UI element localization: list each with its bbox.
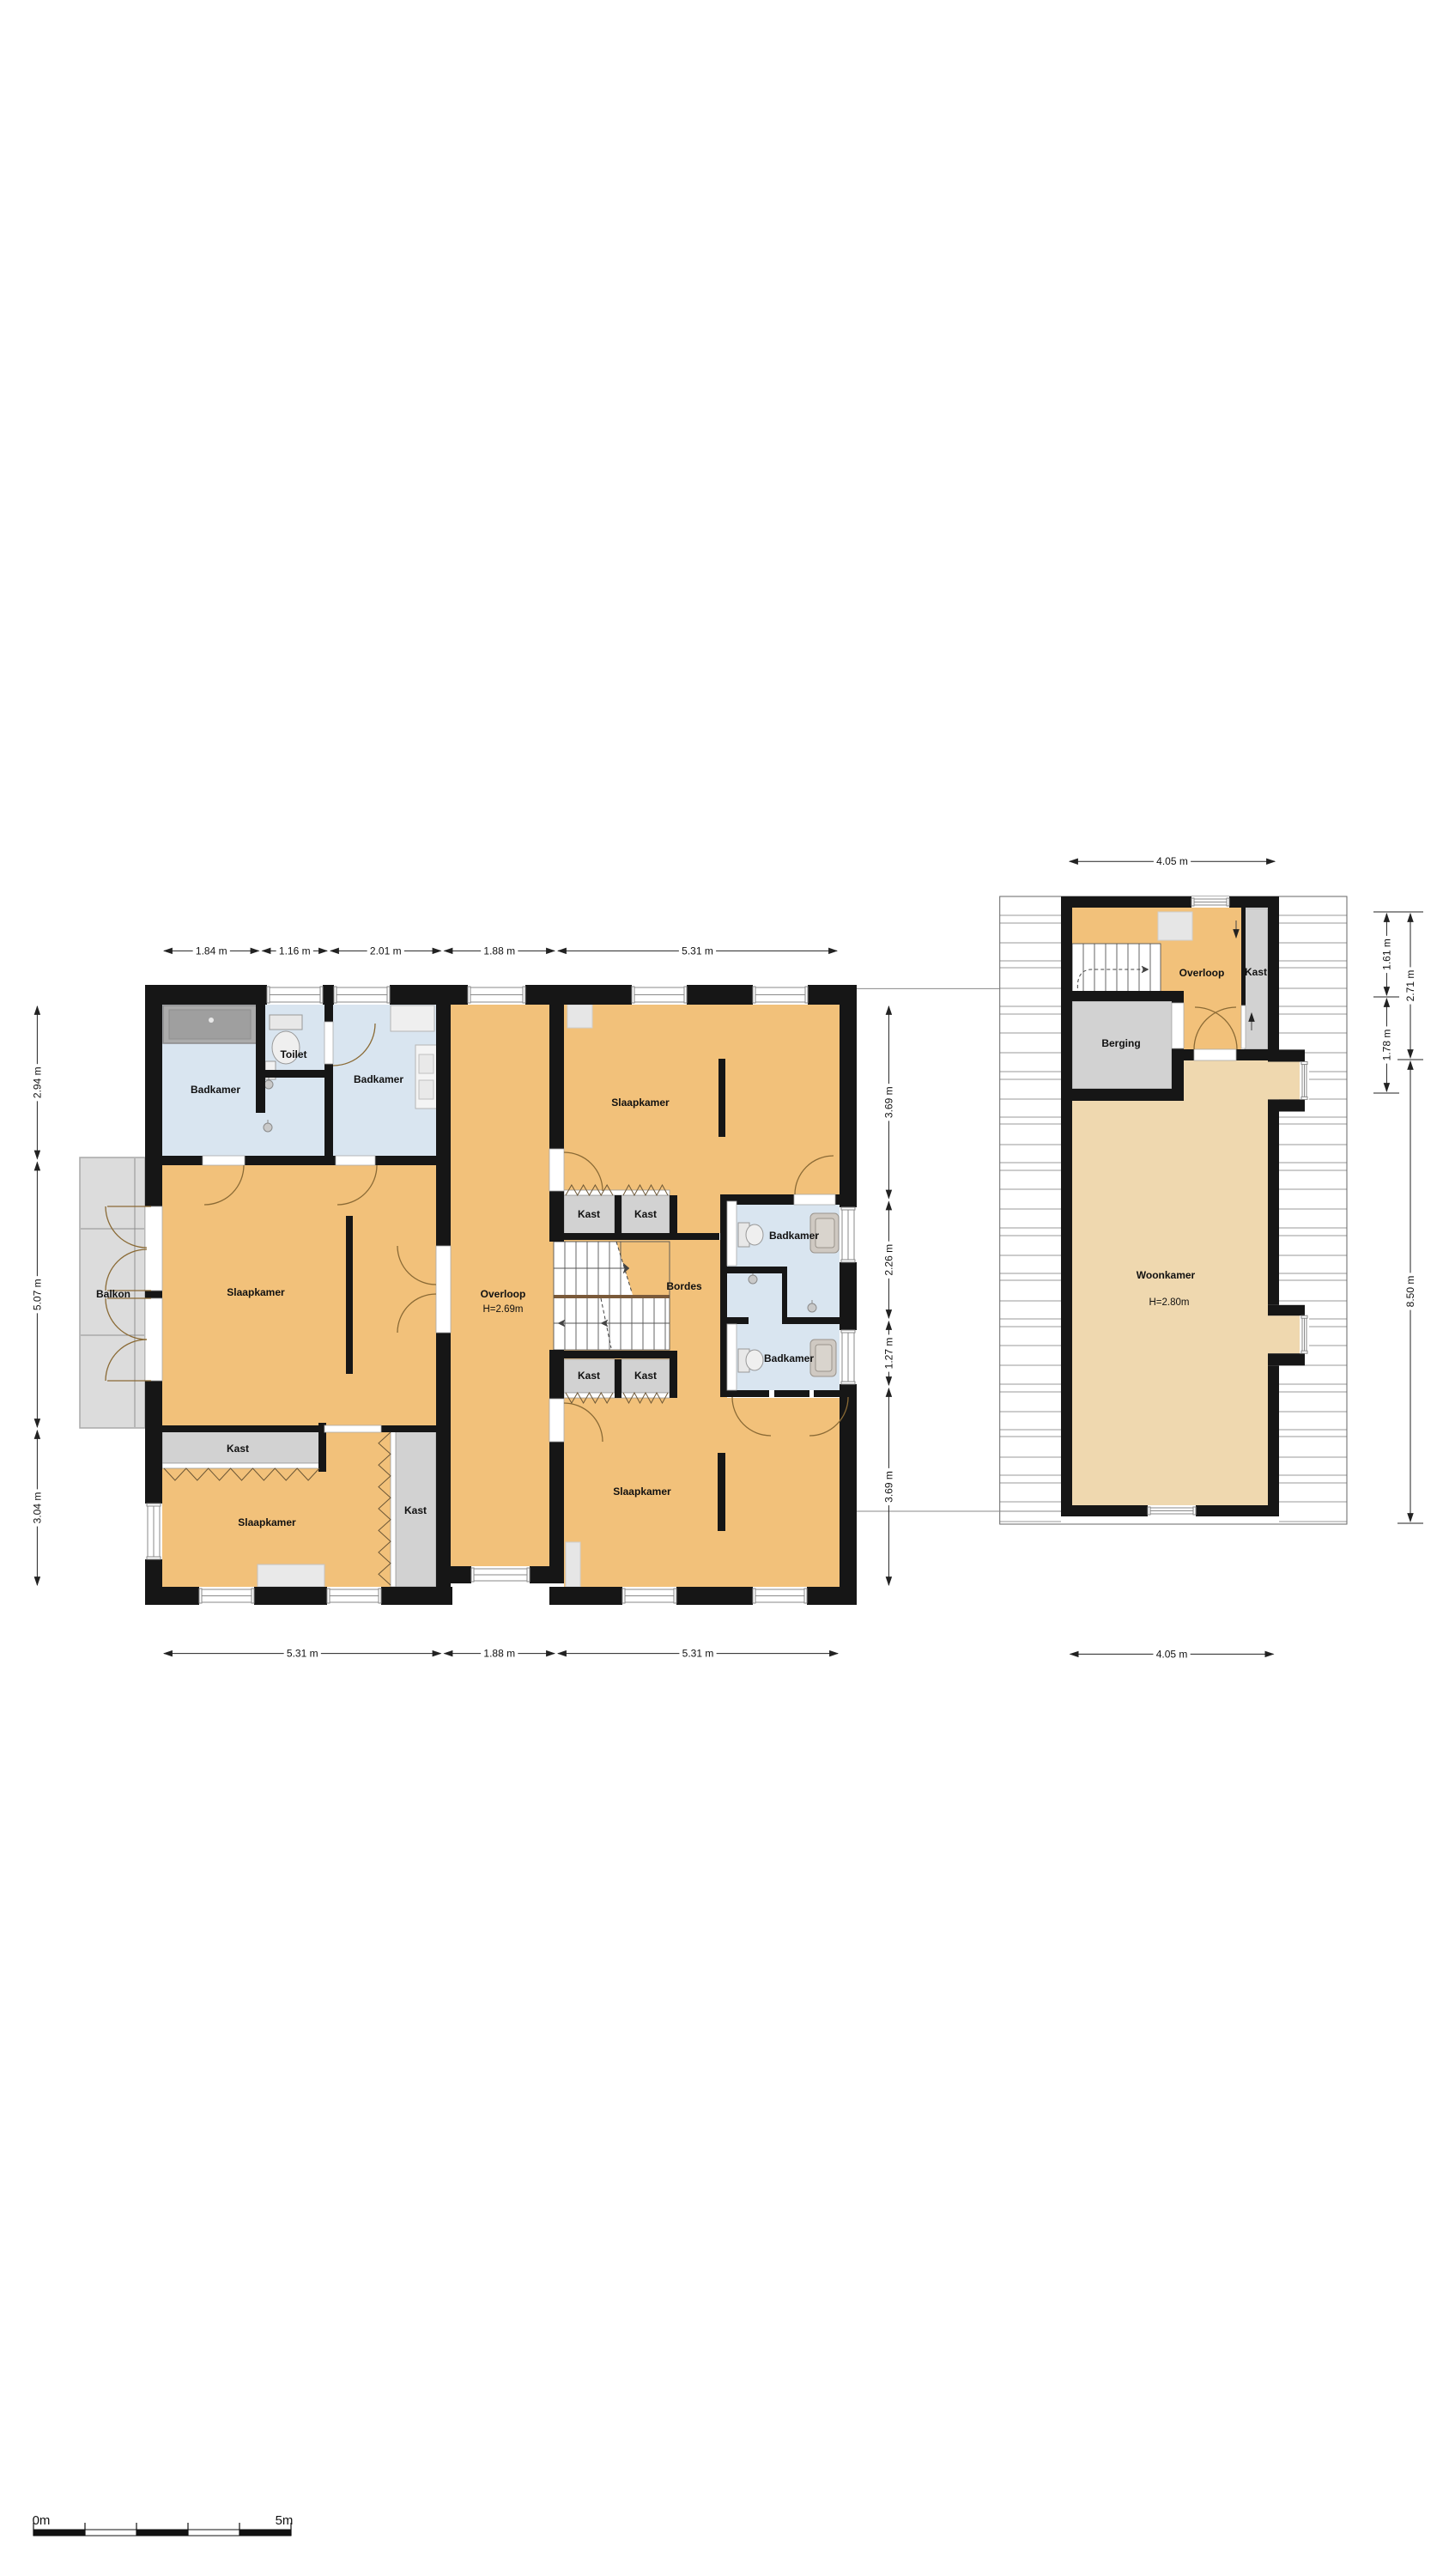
svg-text:Toilet: Toilet <box>280 1048 306 1060</box>
svg-text:2.26 m: 2.26 m <box>882 1244 894 1276</box>
svg-text:Slaapkamer: Slaapkamer <box>238 1516 296 1528</box>
svg-text:4.05 m: 4.05 m <box>1156 855 1188 867</box>
svg-text:H=2.69m: H=2.69m <box>483 1304 524 1315</box>
svg-text:Berging: Berging <box>1101 1037 1140 1049</box>
svg-text:8.50 m: 8.50 m <box>1404 1276 1416 1308</box>
svg-text:1.78 m: 1.78 m <box>1380 1030 1392 1061</box>
svg-text:1.88 m: 1.88 m <box>483 945 515 957</box>
svg-text:Overloop: Overloop <box>1179 967 1225 979</box>
svg-text:2.71 m: 2.71 m <box>1404 970 1416 1002</box>
svg-text:5m: 5m <box>276 2513 294 2528</box>
svg-text:5.07 m: 5.07 m <box>31 1279 43 1310</box>
svg-text:Kast: Kast <box>578 1370 600 1382</box>
svg-text:Kast: Kast <box>634 1370 657 1382</box>
svg-text:H=2.80m: H=2.80m <box>1149 1297 1190 1308</box>
svg-text:Bordes: Bordes <box>666 1280 702 1292</box>
svg-text:Balkon: Balkon <box>96 1288 130 1300</box>
svg-text:Slaapkamer: Slaapkamer <box>227 1286 285 1298</box>
svg-text:3.04 m: 3.04 m <box>31 1492 43 1524</box>
svg-text:3.69 m: 3.69 m <box>882 1471 894 1503</box>
svg-text:Kast: Kast <box>227 1443 249 1455</box>
svg-text:5.31 m: 5.31 m <box>682 945 713 957</box>
svg-text:1.84 m: 1.84 m <box>196 945 227 957</box>
svg-text:Kast: Kast <box>404 1504 427 1516</box>
svg-text:Woonkamer: Woonkamer <box>1137 1269 1196 1281</box>
svg-text:2.01 m: 2.01 m <box>370 945 402 957</box>
svg-text:Slaapkamer: Slaapkamer <box>611 1097 670 1109</box>
svg-text:5.31 m: 5.31 m <box>682 1648 714 1660</box>
svg-text:Badkamer: Badkamer <box>191 1084 240 1096</box>
svg-text:Badkamer: Badkamer <box>764 1352 814 1364</box>
svg-text:0m: 0m <box>33 2513 51 2528</box>
svg-text:2.94 m: 2.94 m <box>31 1066 43 1098</box>
svg-text:4.05 m: 4.05 m <box>1156 1648 1188 1660</box>
svg-text:Kast: Kast <box>1245 966 1267 978</box>
svg-text:5.31 m: 5.31 m <box>287 1648 318 1660</box>
svg-text:3.69 m: 3.69 m <box>882 1086 894 1118</box>
svg-text:Kast: Kast <box>634 1208 657 1220</box>
svg-text:Overloop: Overloop <box>481 1288 526 1300</box>
svg-text:Kast: Kast <box>578 1208 600 1220</box>
svg-text:Slaapkamer: Slaapkamer <box>613 1485 671 1498</box>
svg-text:Badkamer: Badkamer <box>354 1073 403 1085</box>
svg-text:1.16 m: 1.16 m <box>279 945 311 957</box>
svg-text:1.27 m: 1.27 m <box>882 1338 894 1370</box>
svg-text:Badkamer: Badkamer <box>769 1230 819 1242</box>
svg-text:1.61 m: 1.61 m <box>1380 939 1392 970</box>
svg-text:1.88 m: 1.88 m <box>483 1648 515 1660</box>
